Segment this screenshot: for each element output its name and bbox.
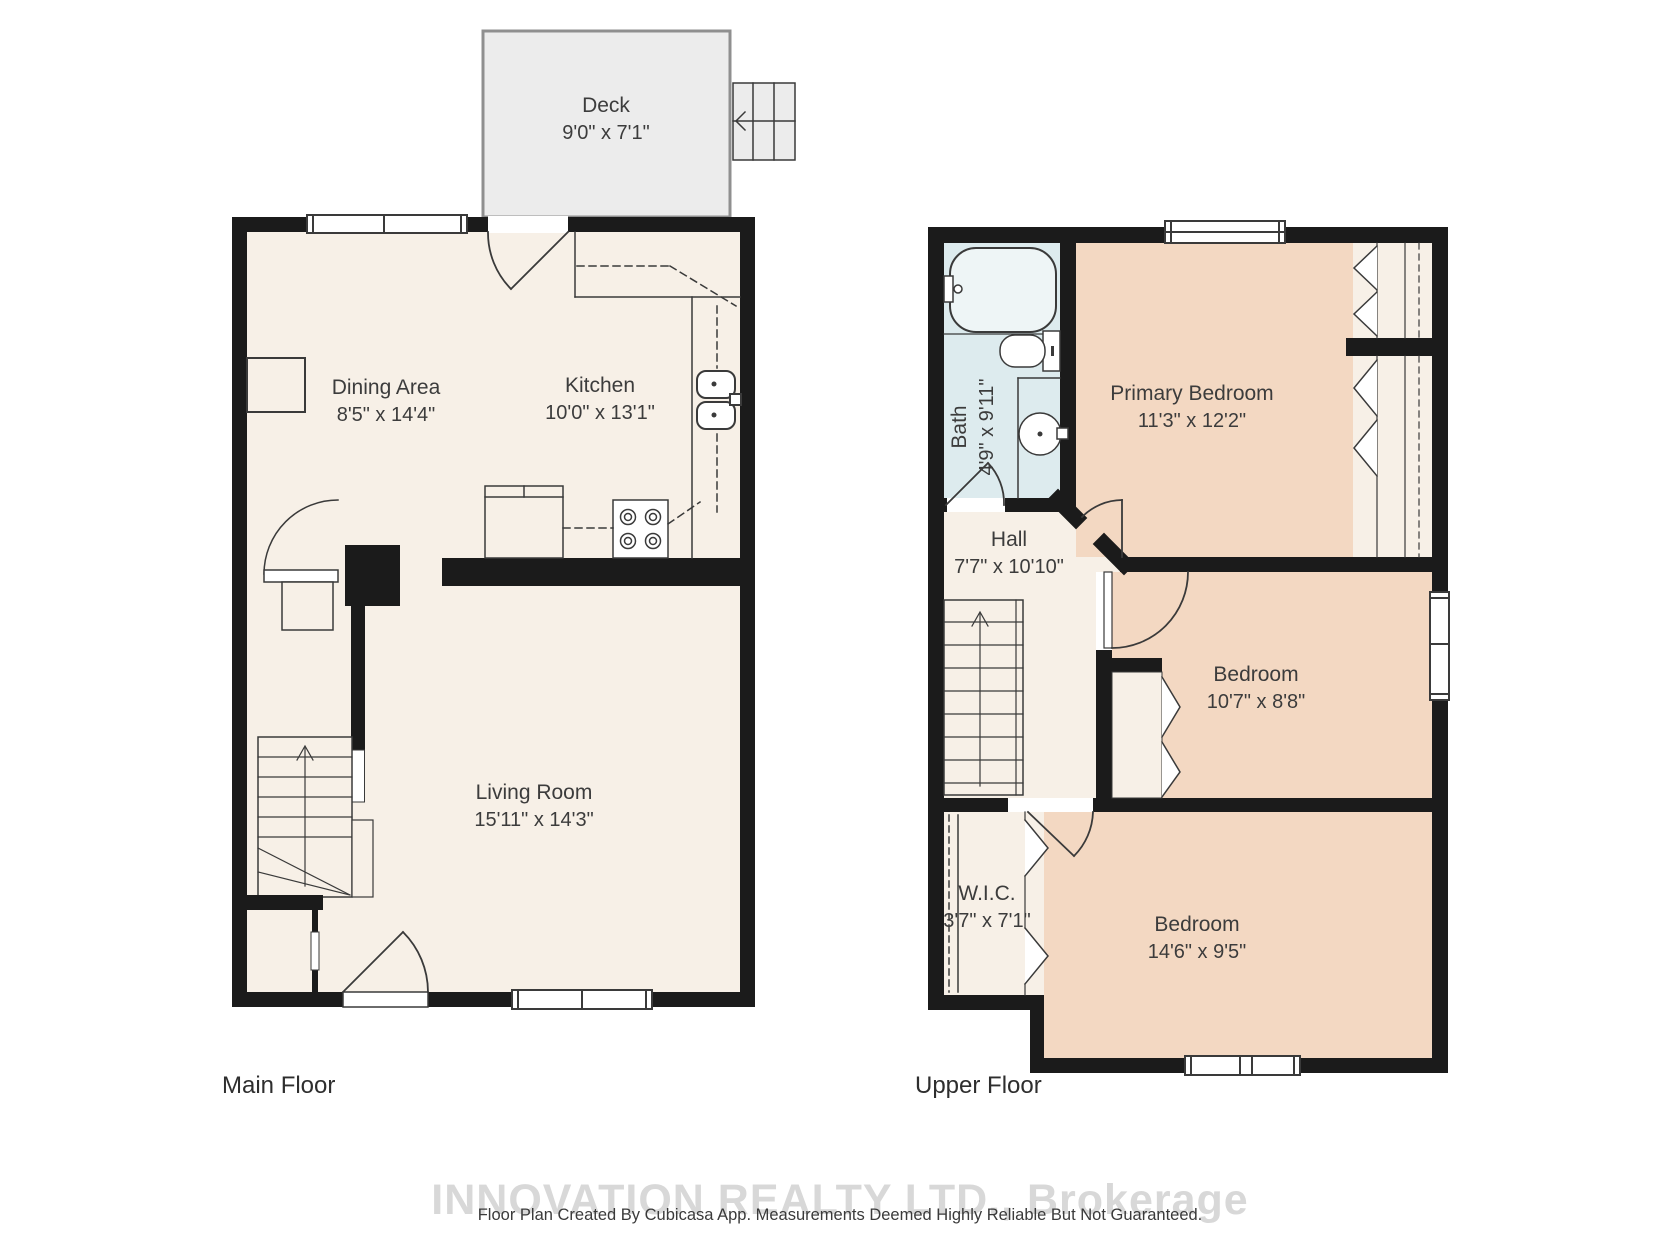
main-floor-plan <box>232 31 795 1009</box>
room-name: Dining Area <box>332 374 441 402</box>
room-dims: 14'6" x 9'5" <box>1148 939 1247 965</box>
room-name: Bedroom <box>1148 911 1247 939</box>
room-label-living: Living Room 15'11" x 14'3" <box>474 779 593 833</box>
room-dims: 8'5" x 14'4" <box>332 402 441 428</box>
room-label-kitchen: Kitchen 10'0" x 13'1" <box>545 372 655 426</box>
main-floor-title: Main Floor <box>222 1072 335 1100</box>
room-label-hall: Hall 7'7" x 10'10" <box>954 526 1064 580</box>
bedroom-lower-window-icon <box>1185 1056 1300 1075</box>
room-label-bedroom-lower: Bedroom 14'6" x 9'5" <box>1148 911 1247 965</box>
stair-opening-icon <box>352 750 365 802</box>
bedroom-middle-window-icon <box>1430 592 1449 700</box>
room-label-bedroom-middle: Bedroom 10'7" x 8'8" <box>1207 661 1306 715</box>
room-name: Deck <box>562 92 649 120</box>
room-dims: 3'7" x 7'1" <box>943 908 1030 934</box>
upper-floor-title: Upper Floor <box>915 1072 1042 1100</box>
fireplace-icon <box>247 358 305 412</box>
floor-plan-canvas: Deck 9'0" x 7'1" Dining Area 8'5" x 14'4… <box>0 0 1680 1260</box>
floor-plan-drawing <box>0 0 1680 1260</box>
room-name: Bedroom <box>1207 661 1306 689</box>
room-dims: 11'3" x 12'2" <box>1110 408 1273 434</box>
room-name: Bath <box>946 378 974 475</box>
room-dims: 7'7" x 10'10" <box>954 554 1064 580</box>
room-label-deck: Deck 9'0" x 7'1" <box>562 92 649 146</box>
upper-staircase-icon <box>944 600 1023 795</box>
kitchen-counter-peninsula <box>485 486 563 558</box>
room-name: Primary Bedroom <box>1110 380 1273 408</box>
disclaimer-text: Floor Plan Created By Cubicasa App. Meas… <box>0 1206 1680 1225</box>
toilet-icon <box>1000 331 1060 371</box>
room-name: Hall <box>954 526 1064 554</box>
living-window-icon <box>512 990 652 1009</box>
room-dims: 4'9" x 9'11" <box>974 378 1000 475</box>
room-name: Living Room <box>474 779 593 807</box>
room-label-bath: Bath 4'9" x 9'11" <box>946 378 1000 475</box>
bathtub-icon <box>944 248 1060 334</box>
room-dims: 9'0" x 7'1" <box>562 120 649 146</box>
stove-icon <box>613 500 668 558</box>
room-dims: 10'0" x 13'1" <box>545 400 655 426</box>
room-label-wic: W.I.C. 3'7" x 7'1" <box>943 880 1030 934</box>
room-name: W.I.C. <box>943 880 1030 908</box>
room-label-primary-bedroom: Primary Bedroom 11'3" x 12'2" <box>1110 380 1273 434</box>
room-dims: 15'11" x 14'3" <box>474 807 593 833</box>
room-label-dining: Dining Area 8'5" x 14'4" <box>332 374 441 428</box>
room-name: Kitchen <box>545 372 655 400</box>
deck-stairs-icon <box>733 83 795 160</box>
room-dims: 10'7" x 8'8" <box>1207 689 1306 715</box>
dining-window-icon <box>307 215 467 233</box>
primary-window-icon <box>1165 221 1285 243</box>
